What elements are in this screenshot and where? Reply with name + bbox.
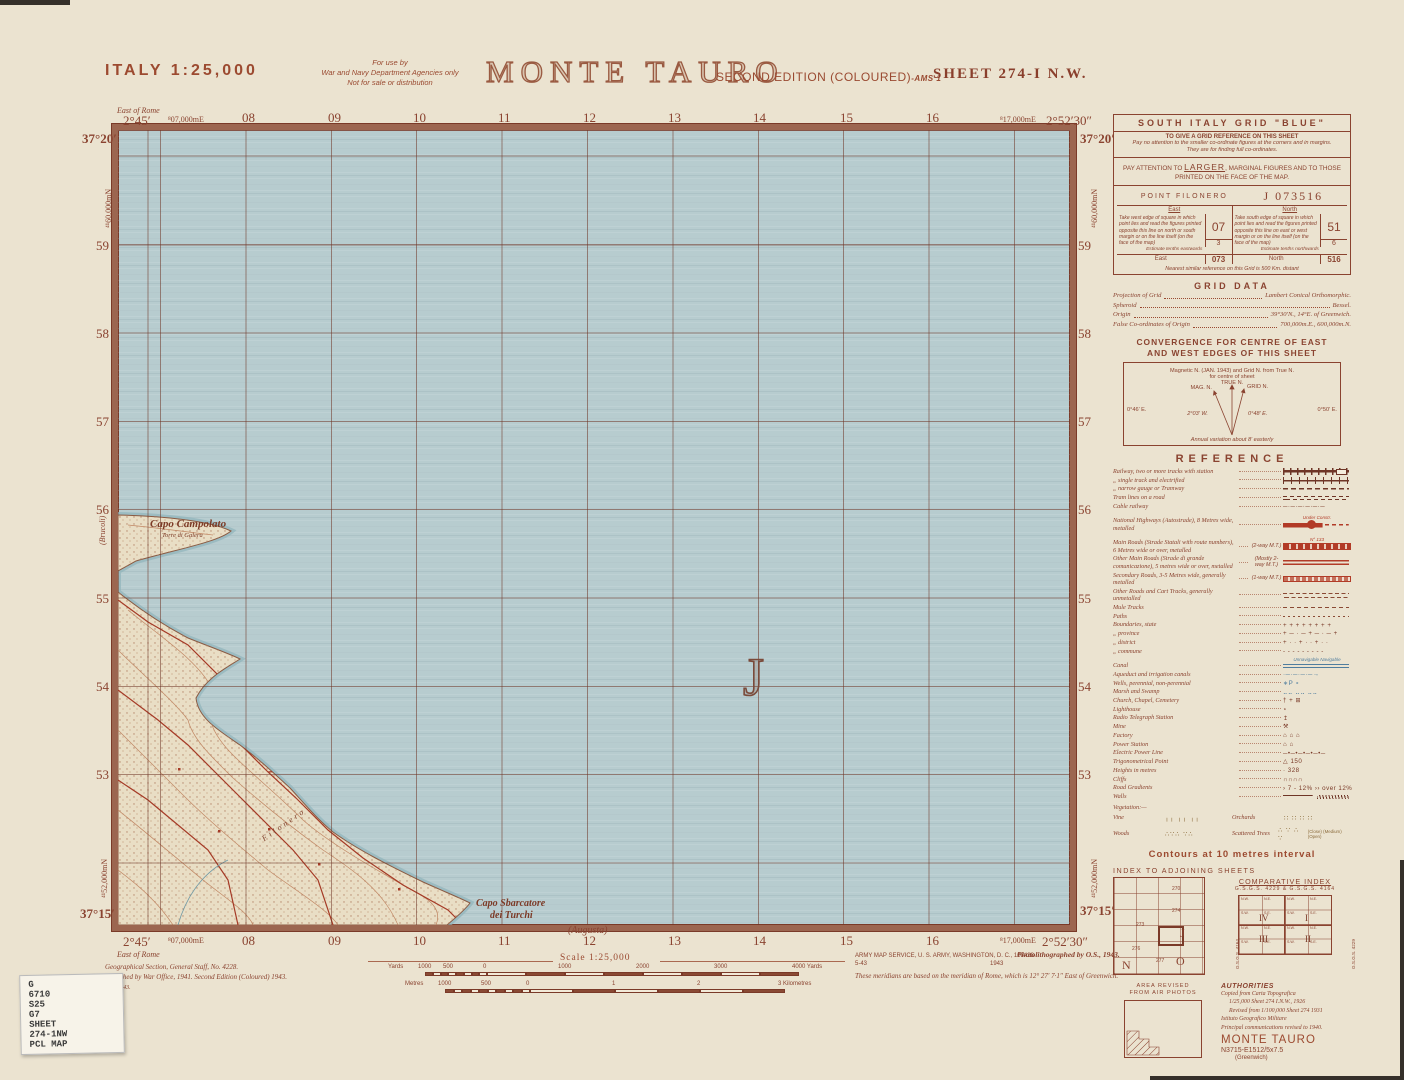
legend-symbol: ↥ xyxy=(1283,715,1351,722)
legend-row: Trigonometrical Point△ 150 xyxy=(1113,758,1351,765)
legend-row: Secondary Roads, 3-5 Metres wide, genera… xyxy=(1113,572,1351,587)
vegetation-label: Woods xyxy=(1113,830,1165,837)
legend-symbol: · 328 xyxy=(1283,767,1351,774)
scale-bar-segment xyxy=(464,972,472,976)
scale-bar-segment xyxy=(433,972,441,976)
vegetation-symbol: ∴ ∵ ∴ ∵ xyxy=(1278,826,1304,842)
grid-data-label: False Co-ordinates of Origin xyxy=(1113,320,1190,330)
legend-symbol-glyphs: △ 150 xyxy=(1283,758,1302,765)
lon-left-top: 2°45′ xyxy=(123,113,151,129)
leader-dots xyxy=(1239,786,1281,788)
north-column: North Take south edge of square in which… xyxy=(1232,206,1348,263)
vegetation-label: Orchards xyxy=(1232,814,1284,821)
map-face: J Capo Campolato Torre di Galera Capo Sb… xyxy=(112,124,1076,931)
legend-row: Paths xyxy=(1113,613,1351,620)
comparative-title: COMPARATIVE INDEX xyxy=(1219,877,1351,886)
adjoining-sheet-west: (Brucoli) xyxy=(98,516,107,545)
legend-symbol xyxy=(1283,477,1351,484)
scale-bar-label: 1000 xyxy=(418,964,431,970)
legend-row: Railway, two or more tracks with station xyxy=(1113,468,1351,475)
legend-label: „ district xyxy=(1113,639,1237,646)
scale-bar-segment xyxy=(441,972,449,976)
leader-dots xyxy=(1239,623,1281,625)
leader-dots xyxy=(1239,470,1281,472)
authorities-greenwich: (Greenwich) xyxy=(1221,1055,1351,1061)
legend-label: Secondary Roads, 3-5 Metres wide, genera… xyxy=(1113,572,1237,587)
comparative-quadrant: II xyxy=(1305,934,1311,944)
scale-bar-segment xyxy=(760,972,799,976)
legend-symbol-glyphs: ∩∩∩∩ xyxy=(1283,776,1303,783)
legend-symbol-bar xyxy=(1283,615,1349,617)
place-label-torre-di-galera: Torre di Galera xyxy=(162,532,203,539)
scale-bar-segment xyxy=(700,989,743,993)
point-label: POINT FILONERO xyxy=(1141,193,1228,200)
scale-label: Scale 1:25,000 xyxy=(560,953,630,963)
comparative-cell: N.W. xyxy=(1287,926,1295,930)
scale-bar-label: 4000 Yards xyxy=(792,964,822,970)
leader-dots xyxy=(1239,606,1281,608)
legend-row: Other Roads and Cart Tracks, generally u… xyxy=(1113,588,1351,603)
north-total-label: North xyxy=(1233,255,1321,264)
scale-bar-label: 500 xyxy=(481,981,491,987)
comparative-quadrant: I xyxy=(1305,913,1308,923)
authorities-line: Principal communications revised to 1940… xyxy=(1221,1024,1351,1033)
attention-em: LARGER xyxy=(1184,162,1225,172)
legend-symbol: ⌂ ⌂ xyxy=(1283,741,1351,748)
index-adjoining-title: INDEX TO ADJOINING SHEETS xyxy=(1113,866,1351,875)
leader-dots xyxy=(1239,505,1281,507)
legend-symbol-glyphs: ─·─·─·─·─·─ xyxy=(1283,503,1325,510)
index-adjoining-diagram: 270273274JNO276277 xyxy=(1113,877,1205,975)
legend-note: (1-way M.T.) xyxy=(1250,576,1283,582)
legend-row: Road Gradients› 7 - 12% ›› over 12% xyxy=(1113,784,1351,791)
northing-right: 53 xyxy=(1078,767,1091,783)
northing-right: 58 xyxy=(1078,326,1091,342)
leader-dots xyxy=(1134,317,1268,318)
legend-symbol-glyphs: ⚒ xyxy=(1283,723,1289,730)
legend-row: „ single track and electrified xyxy=(1113,477,1351,484)
leader-dots xyxy=(1239,478,1281,480)
scale-bar-unit: Yards xyxy=(388,964,403,970)
svg-text:GRID N.: GRID N. xyxy=(1247,384,1269,390)
legend-symbol: ⋆ xyxy=(1283,706,1351,713)
legend-symbol: ⌂ ⌂ ⌂ xyxy=(1283,732,1351,739)
grid-box-line2: Pay no attention to the smaller co-ordin… xyxy=(1117,140,1347,147)
legend-row: „ province+ ─ · ─ + ─ · ─ + xyxy=(1113,630,1351,637)
leader-dots xyxy=(1239,742,1281,744)
legend-label: Radio Telegraph Station xyxy=(1113,714,1237,721)
easting-top: 11 xyxy=(498,110,511,126)
legend-label: Railway, two or more tracks with station xyxy=(1113,468,1237,475)
legend-symbol-caption: Unnavigable Navigable xyxy=(1283,657,1351,662)
leader-dots xyxy=(1239,523,1281,525)
scale-bar-segment xyxy=(513,989,522,993)
point-value: J 073516 xyxy=(1263,189,1323,204)
legend-label: Walls xyxy=(1113,793,1237,800)
scale-bar-label: 0 xyxy=(526,981,529,987)
grid-data-row: Projection of GridLambert Conical Orthom… xyxy=(1113,291,1351,301)
legend-row: Power Station⌂ ⌂ xyxy=(1113,741,1351,748)
northing-right: 57 xyxy=(1078,414,1091,430)
reference-title: REFERENCE xyxy=(1113,453,1351,465)
northing-left: 56 xyxy=(96,502,109,518)
legend-symbol xyxy=(1283,615,1351,617)
restriction-note: For use byWar and Navy Department Agenci… xyxy=(290,58,490,88)
legend-symbol-bar xyxy=(1283,607,1349,609)
ams-imprint: ARMY MAP SERVICE, U. S. ARMY, WASHINGTON… xyxy=(855,953,1034,959)
svg-text:0°48′ E.: 0°48′ E. xyxy=(1248,411,1267,417)
easting-bottom: 12 xyxy=(583,933,596,949)
legend-symbol-glyphs: + ─ · ─ + ─ · ─ + xyxy=(1283,630,1338,637)
legend-row: „ narrow gauge or Tramway xyxy=(1113,485,1351,492)
vegetation-label: Vine xyxy=(1113,814,1165,821)
convergence-title-1: CONVERGENCE FOR CENTRE OF EAST xyxy=(1113,337,1351,348)
grid-data-value: Lambert Conical Orthomorphic. xyxy=(1265,291,1351,301)
legend-symbol: ∩∩∩∩ xyxy=(1283,776,1351,783)
leader-dots xyxy=(1239,681,1281,683)
northing-full-bottom-left: ⁴¹52,000mN xyxy=(100,859,109,898)
east-square-value: 07 xyxy=(1206,214,1232,239)
legend-row: Boundaries, state+ + + + + + + + xyxy=(1113,621,1351,628)
legend-label: Cliffs xyxy=(1113,776,1237,783)
leader-dots xyxy=(1193,327,1277,328)
restriction-line: For use by xyxy=(290,58,490,68)
lat-top-right: 37°20′ xyxy=(1080,131,1115,147)
scale-bar-label: 1000 xyxy=(558,964,571,970)
grid-box-line3: They are for finding full co-ordinates. xyxy=(1117,147,1347,154)
area-revised-diagram xyxy=(1124,1000,1202,1058)
legend-symbol-glyphs: - - - - - - - - - xyxy=(1283,648,1324,655)
scale-bar-segment xyxy=(496,989,505,993)
comparative-cell: N.E. xyxy=(1310,897,1317,901)
place-label-capo-sbarcatore-2: dei Turchi xyxy=(490,910,533,921)
scale-bar-label: 2000 xyxy=(636,964,649,970)
legend-row: „ district+ · · + · · + · · xyxy=(1113,639,1351,646)
comparative-left-label: G.S.G.S. 4164 xyxy=(1235,939,1240,969)
legend-symbol: † + ⊞ xyxy=(1283,697,1351,704)
scale-rule-left xyxy=(368,961,553,962)
legend-label: „ narrow gauge or Tramway xyxy=(1113,485,1237,492)
svg-text:2°03′ W.: 2°03′ W. xyxy=(1186,411,1208,417)
leader-dots xyxy=(1140,307,1330,308)
legend-label: Tram lines on a road xyxy=(1113,494,1237,501)
east-total-label: East xyxy=(1117,255,1205,264)
legend-label: Electric Power Line xyxy=(1113,749,1237,756)
scale-bar-segment xyxy=(456,972,464,976)
country-scale-label: ITALY 1:25,000 xyxy=(105,62,258,80)
legend-symbol-glyphs: ─•─•─•─•─•─ xyxy=(1283,750,1326,757)
grid-data-label: Projection of Grid xyxy=(1113,291,1161,301)
scale-bar-unit: Metres xyxy=(405,981,423,987)
comparative-cell: N.W. xyxy=(1241,926,1249,930)
scale-bar-segment xyxy=(462,989,471,993)
legend-symbol-glyphs: › 7 - 12% ›› over 12% xyxy=(1283,785,1352,792)
legend-symbol: N° 133 xyxy=(1283,543,1351,550)
legend-symbol-bar xyxy=(1283,794,1349,799)
legend-label: Church, Chapel, Cemetery xyxy=(1113,697,1237,704)
easting-top: ⁸07,000mE xyxy=(168,115,204,124)
legend-symbol-glyphs: † + ⊞ xyxy=(1283,697,1301,704)
legend-symbol-glyphs: + + + + + + + + xyxy=(1283,622,1331,629)
sticker-line: PCL MAP xyxy=(30,1038,124,1050)
grid-data-value: 39°30′N., 14°E. of Greenwich. xyxy=(1271,310,1351,320)
legend-symbol: - - - - - - - - - xyxy=(1283,648,1351,655)
northing-full-top-left: ⁴¹60,000mN xyxy=(104,189,113,228)
leader-dots xyxy=(1164,298,1262,299)
legend-row: Cliffs∩∩∩∩ xyxy=(1113,776,1351,783)
adjoining-sheet-label: 277 xyxy=(1156,958,1164,964)
vegetation-item: Orchards∷ ∷ ∷ ∷ xyxy=(1232,814,1351,822)
adjoining-sheet-label: 273 xyxy=(1136,922,1144,928)
comparative-right-label: G.S.G.S. 4229 xyxy=(1351,939,1356,969)
legend-row: Lighthouse⋆ xyxy=(1113,706,1351,713)
scale-bar-label: 3 Kilometres xyxy=(778,981,811,987)
adjoining-sheet-label: 270 xyxy=(1172,886,1180,892)
svg-text:0°46′ E.: 0°46′ E. xyxy=(1127,407,1147,413)
easting-top: 13 xyxy=(668,110,681,126)
easting-bottom: 16 xyxy=(926,933,939,949)
leader-dots xyxy=(1239,545,1248,547)
comparative-cell: S.W. xyxy=(1241,940,1249,944)
north-tenths-value: 6 xyxy=(1321,239,1347,247)
adjoining-sheet-label: O xyxy=(1176,954,1185,969)
legend-row: Factory⌂ ⌂ ⌂ xyxy=(1113,732,1351,739)
easting-top: 15 xyxy=(840,110,853,126)
legend-symbol-bar xyxy=(1283,592,1349,599)
edition-text: SECOND EDITION (COLOURED) xyxy=(716,70,911,84)
legend-row: Radio Telegraph Station↥ xyxy=(1113,714,1351,721)
scan-edge-bottom xyxy=(1150,1076,1404,1080)
legend-row: Cable railway─·─·─·─·─·─ xyxy=(1113,503,1351,510)
scale-bar-label: 500 xyxy=(443,964,453,970)
legend-label: Mule Tracks xyxy=(1113,604,1237,611)
leader-dots xyxy=(1239,649,1281,651)
legend-symbol-bar xyxy=(1283,543,1351,550)
legend-symbol-caption: N° 133 xyxy=(1283,537,1351,542)
leader-dots xyxy=(1239,699,1281,701)
lon-right-top: 2°52′30″ xyxy=(1046,113,1092,129)
legend-symbol-bar xyxy=(1283,495,1349,501)
legend-symbol: + · · + · · + · · xyxy=(1283,639,1351,646)
vegetation-item: Scattered Trees∴ ∵ ∴ ∵(Close) (Medium) (… xyxy=(1232,826,1351,842)
leader-dots xyxy=(1239,614,1281,616)
legend-row: Walls xyxy=(1113,793,1351,800)
easting-bottom: 13 xyxy=(668,933,681,949)
grid-data-row: False Co-ordinates of Origin700,000m.E.,… xyxy=(1113,320,1351,330)
leader-dots xyxy=(1239,751,1281,753)
lon-right-bottom: 2°52′30″ xyxy=(1042,934,1088,950)
legend-symbol-glyphs: · 328 xyxy=(1283,767,1300,774)
comparative-cell: S.E. xyxy=(1310,940,1317,944)
legend-symbol-glyphs: ·─·─·─·─→ xyxy=(1283,671,1319,678)
area-revised-line1: AREA REVISED xyxy=(1113,983,1213,991)
legend-label: „ single track and electrified xyxy=(1113,477,1237,484)
leader-dots xyxy=(1239,777,1281,779)
legend-symbol xyxy=(1283,495,1351,501)
legend-symbol: ·─·─·─·─→ xyxy=(1283,671,1351,678)
edition-label: SECOND EDITION (COLOURED)-AMS 1 xyxy=(716,70,941,84)
grid-data-section: GRID DATA Projection of GridLambert Coni… xyxy=(1113,281,1351,331)
legend-label: Wells, perennial, non-perennial xyxy=(1113,680,1237,687)
scale-bar-segment xyxy=(522,989,531,993)
legend-symbol: + ─ · ─ + ─ · ─ + xyxy=(1283,630,1351,637)
restriction-line: Not for sale or distribution xyxy=(290,78,490,88)
legend-symbol-glyphs: ⌂ ⌂ ⌂ xyxy=(1283,732,1300,739)
legend-row: Tram lines on a road xyxy=(1113,494,1351,501)
easting-bottom: ⁸17,000mE xyxy=(1000,936,1036,945)
leader-dots xyxy=(1239,487,1281,489)
legend-label: Mine xyxy=(1113,723,1237,730)
legend-row: Heights in metres· 328 xyxy=(1113,767,1351,774)
lat-top-left: 37°20′ xyxy=(82,131,117,147)
northing-right: 55 xyxy=(1078,591,1091,607)
attention-pre: PAY ATTENTION TO xyxy=(1123,165,1184,172)
leader-dots xyxy=(1239,707,1281,709)
easting-bottom: 09 xyxy=(328,933,341,949)
scale-bar-segment xyxy=(565,972,604,976)
legend-symbol: + + + + + + + + xyxy=(1283,622,1351,629)
northing-left: 53 xyxy=(96,767,109,783)
legend-label: Canal xyxy=(1113,662,1237,669)
comparative-cell: N.W. xyxy=(1241,897,1249,901)
legend-row: Wells, perennial, non-perennial∗P ∘ xyxy=(1113,680,1351,687)
easting-bottom: 10 xyxy=(413,933,426,949)
northing-full-top-right: ⁴¹60,000mN xyxy=(1090,189,1099,228)
legend-label: Boundaries, state xyxy=(1113,621,1237,628)
grid-data-value: 700,000m.E., 600,000m.N. xyxy=(1280,320,1351,330)
comparative-cell: N.E. xyxy=(1264,897,1271,901)
northing-left: 54 xyxy=(96,679,109,695)
authorities-line: Istituto Geografico Militare xyxy=(1221,1015,1351,1024)
comparative-cell: S.W. xyxy=(1241,911,1249,915)
leader-dots xyxy=(1239,734,1281,736)
scale-bar-segment xyxy=(487,972,526,976)
legend-symbol-bar xyxy=(1283,522,1349,528)
restriction-line: War and Navy Department Agencies only xyxy=(290,68,490,78)
easting-bottom: 14 xyxy=(753,933,766,949)
legend-label: Other Roads and Cart Tracks, generally u… xyxy=(1113,588,1237,603)
grid-data-label: Origin xyxy=(1113,310,1131,320)
comparative-cell: N.E. xyxy=(1264,926,1271,930)
north-total-value: 516 xyxy=(1320,255,1347,264)
legend-symbol xyxy=(1283,576,1351,582)
svg-text:TRUE N.: TRUE N. xyxy=(1221,380,1244,386)
east-total-value: 073 xyxy=(1205,255,1232,264)
legend-label: Heights in metres xyxy=(1113,767,1237,774)
legend-symbol-glyphs: ∗P ∘ xyxy=(1283,680,1300,687)
scale-bar-segment xyxy=(505,989,514,993)
convergence-title-2: AND WEST EDGES OF THIS SHEET xyxy=(1113,348,1351,359)
contour-interval-note: Contours at 10 metres interval xyxy=(1113,849,1351,860)
adjoining-sheet-label: 276 xyxy=(1132,946,1140,952)
legend-note: (Mostly 2-way M.T.) xyxy=(1250,557,1283,569)
grid-box-attention: PAY ATTENTION TO LARGER, MARGINAL FIGURE… xyxy=(1117,160,1347,184)
svg-text:Annual variation about 8′ east: Annual variation about 8′ easterly xyxy=(1190,437,1275,443)
legend-symbol-bar xyxy=(1283,477,1349,484)
legend-row: Main Roads (Strade Statali with route nu… xyxy=(1113,539,1351,554)
grid-data-row: SpheroidBessel. xyxy=(1113,301,1351,311)
north-head: North xyxy=(1233,206,1348,214)
scan-edge-top-left xyxy=(0,0,70,5)
comparative-quadrant: IV xyxy=(1259,913,1269,923)
legend-symbol: ─•─•─•─•─•─ xyxy=(1283,750,1351,757)
vegetation-label: Vegetation:— xyxy=(1113,804,1147,811)
ams-print-year: 1943 xyxy=(990,961,1003,967)
legend-row: Church, Chapel, Cemetery† + ⊞ xyxy=(1113,697,1351,704)
northing-left: 59 xyxy=(96,238,109,254)
map-grid-lines xyxy=(118,130,1070,925)
authorities-ref: N3715-E1512/5x7.5 xyxy=(1221,1047,1351,1054)
legend-row: „ commune- - - - - - - - - xyxy=(1113,648,1351,655)
easting-top: ⁸17,000mE xyxy=(1000,115,1036,124)
comparative-cell: S.W. xyxy=(1287,911,1295,915)
northing-right: 54 xyxy=(1078,679,1091,695)
lat-bottom-left: 37°15′ xyxy=(80,906,115,922)
northing-right: 59 xyxy=(1078,238,1091,254)
scale-bar-segment xyxy=(743,989,786,993)
legend-label: Main Roads (Strade Statali with route nu… xyxy=(1113,539,1237,554)
comparative-index: COMPARATIVE INDEX G.S.G.S. 4229 & G.S.G.… xyxy=(1219,877,1351,975)
legend-label: National Highways (Autostrade), 8 Metres… xyxy=(1113,517,1237,532)
legend-label: Aqueduct and irrigation canals xyxy=(1113,671,1237,678)
legend-symbol: ─·─·─·─·─·─ xyxy=(1283,503,1351,510)
vegetation-caption: (Close) (Medium) (Open) xyxy=(1308,829,1351,839)
authorities-line: Revised from 1/100,000 Sheet 274 1931 xyxy=(1221,1007,1351,1016)
publisher-imprint: Geographical Section, General Staff, No.… xyxy=(105,962,287,982)
lat-bottom-right: 37°15′ xyxy=(1080,903,1115,919)
scale-bar-segment xyxy=(615,989,658,993)
legend-row: Aqueduct and irrigation canals·─·─·─·─→ xyxy=(1113,671,1351,678)
convergence-section: CONVERGENCE FOR CENTRE OF EAST AND WEST … xyxy=(1113,337,1351,446)
legend-label: Lighthouse xyxy=(1113,706,1237,713)
legend-label: Other Main Roads (Strade di grande comun… xyxy=(1113,555,1237,570)
authorities-title: AUTHORITIES xyxy=(1221,983,1351,990)
east-body: Take west edge of square in which point … xyxy=(1117,214,1205,247)
grid-data-label: Spheroid xyxy=(1113,301,1137,311)
scale-bar-label: 1 xyxy=(612,981,615,987)
easting-top: 16 xyxy=(926,110,939,126)
legend-row: National Highways (Autostrade), 8 Metres… xyxy=(1113,517,1351,532)
legend-symbol: ⣀⣀ ⣀⣀ ⣀⣀ xyxy=(1283,688,1351,695)
scale-bar-label: 3000 xyxy=(714,964,727,970)
vegetation-label: Scattered Trees xyxy=(1232,830,1278,837)
leader-dots xyxy=(1239,632,1281,634)
leader-dots xyxy=(1239,716,1281,718)
convergence-diagram: Magnetic N. (JAN. 1943) and Grid N. from… xyxy=(1123,362,1341,446)
scale-bar-segment xyxy=(721,972,760,976)
vegetation-item: Woods∴∵∴ ∵∴ xyxy=(1113,826,1232,842)
east-head: East xyxy=(1117,206,1232,214)
vegetation-item: Vine╷╷ ╷╷ ╷╷ xyxy=(1113,814,1232,822)
scale-bar-segment xyxy=(488,989,497,993)
area-revised-section: AREA REVISED FROM AIR PHOTOS xyxy=(1113,983,1213,1062)
sheet-number: SHEET 274-I N.W. xyxy=(933,66,1088,83)
place-label-capo-sbarcatore-1: Capo Sbarcatore xyxy=(476,898,545,909)
legend-row: Other Main Roads (Strade di grande comun… xyxy=(1113,555,1351,570)
legend-symbol: Unnavigable Navigable xyxy=(1283,664,1351,668)
scale-bar-segment xyxy=(643,972,682,976)
easting-bottom: 11 xyxy=(498,933,511,949)
scale-bar-segment xyxy=(682,972,721,976)
legend-label: „ commune xyxy=(1113,648,1237,655)
legend-symbol-glyphs: ↥ xyxy=(1283,715,1289,722)
leader-dots xyxy=(1239,725,1281,727)
north-square-value: 51 xyxy=(1321,214,1347,239)
northing-left: 57 xyxy=(96,414,109,430)
legend-row: Electric Power Line─•─•─•─•─•─ xyxy=(1113,749,1351,756)
grid-data-value: Bessel. xyxy=(1333,301,1352,311)
authorities-line: 1/25,000 Sheet 274 I.N.W., 1926 xyxy=(1221,998,1351,1007)
